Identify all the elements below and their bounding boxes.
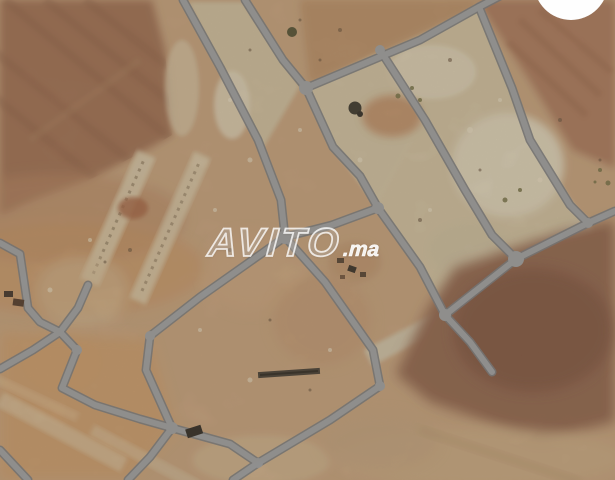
satellite-photo: AVITO.ma [0, 0, 615, 480]
grain-light [0, 0, 615, 480]
satellite-image [0, 0, 615, 480]
